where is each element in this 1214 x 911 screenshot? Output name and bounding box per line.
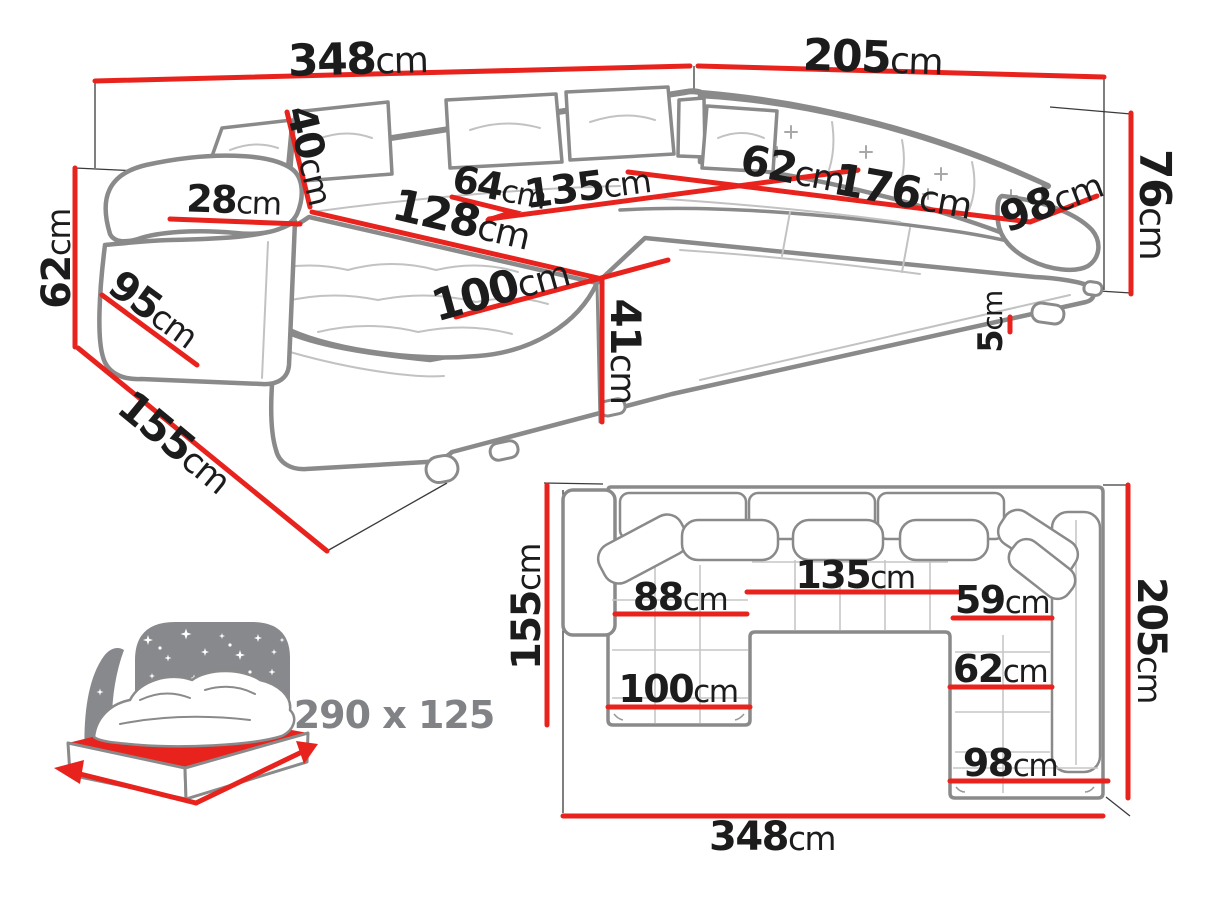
plan-label-135: 135cm	[795, 553, 914, 597]
bed-size-label: 290 x 125	[294, 693, 495, 737]
dim-label-76-height: 76cm	[1129, 149, 1180, 259]
dim-label-348-back: 348cm	[287, 32, 428, 87]
plan-label-98: 98cm	[963, 741, 1057, 785]
plan-label-100: 100cm	[618, 667, 737, 711]
plan-label-348: 348cm	[709, 814, 835, 860]
plan-label-155: 155cm	[504, 544, 550, 670]
diagram-canvas: 348cm 205cm 76cm 62cm 155cm 95cm 28cm 40…	[0, 0, 1214, 911]
plan-label-62: 62cm	[953, 647, 1047, 691]
dim-label-5-leg: 5cm	[971, 291, 1011, 353]
dim-label-41-seat-height: 41cm	[601, 299, 650, 404]
plan-label-88: 88cm	[633, 575, 727, 619]
plan-label-205: 205cm	[1128, 577, 1174, 703]
furniture-dimension-diagram: 348cm 205cm 76cm 62cm 155cm 95cm 28cm 40…	[0, 0, 1214, 911]
dim-label-62-arm-height: 62cm	[34, 209, 80, 309]
plan-label-59: 59cm	[955, 578, 1049, 622]
